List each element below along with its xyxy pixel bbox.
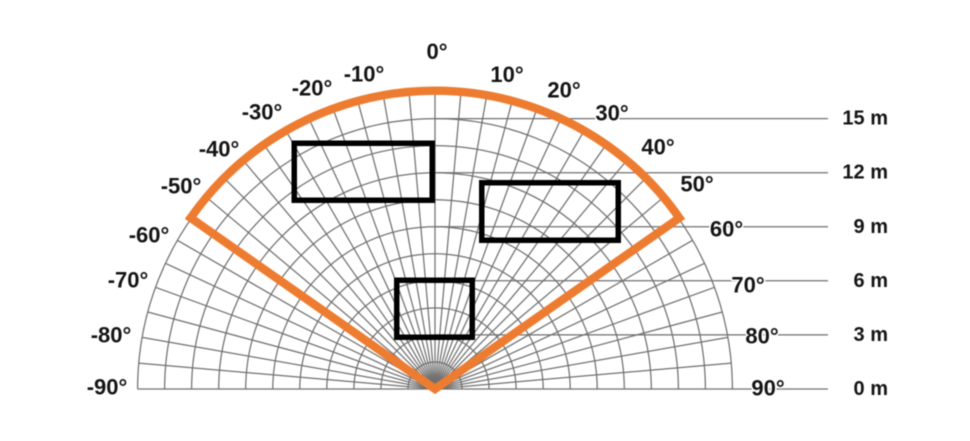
svg-text:0°: 0° (426, 39, 447, 64)
svg-text:70°: 70° (731, 273, 764, 298)
svg-text:20°: 20° (547, 78, 580, 103)
svg-text:80°: 80° (745, 324, 778, 349)
svg-text:3 m: 3 m (854, 324, 888, 346)
svg-text:-10°: -10° (344, 62, 385, 87)
svg-text:0 m: 0 m (854, 378, 888, 400)
svg-text:9 m: 9 m (854, 216, 888, 238)
svg-text:-40°: -40° (199, 137, 240, 162)
svg-text:-70°: -70° (108, 268, 149, 293)
svg-text:30°: 30° (595, 101, 628, 126)
svg-text:-50°: -50° (161, 174, 202, 199)
svg-text:40°: 40° (641, 135, 674, 160)
svg-text:15 m: 15 m (842, 108, 888, 130)
svg-text:-80°: -80° (91, 323, 132, 348)
svg-text:-90°: -90° (87, 375, 128, 400)
svg-text:90°: 90° (751, 376, 784, 401)
svg-text:-60°: -60° (129, 223, 170, 248)
svg-text:60°: 60° (710, 217, 743, 242)
svg-text:-30°: -30° (242, 100, 283, 125)
svg-text:10°: 10° (490, 62, 523, 87)
svg-text:6 m: 6 m (854, 270, 888, 292)
svg-text:12 m: 12 m (842, 162, 888, 184)
svg-text:-20°: -20° (292, 76, 333, 101)
svg-text:50°: 50° (680, 172, 713, 197)
